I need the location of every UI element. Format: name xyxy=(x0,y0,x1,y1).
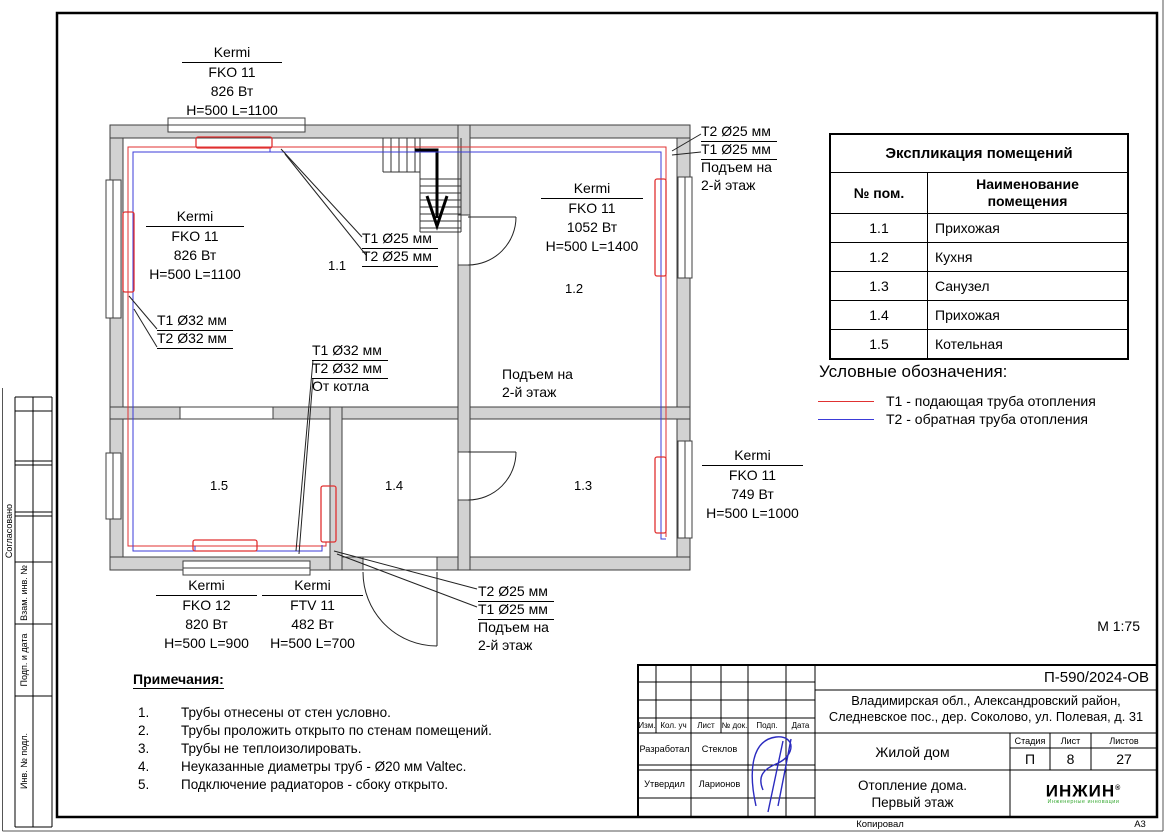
pipe-label: T1 Ø25 мм xyxy=(478,601,554,620)
note-number: 1. xyxy=(138,705,149,720)
logo-tagline: Инженерные инновации xyxy=(1048,799,1120,806)
room-number-1-3: 1.3 xyxy=(574,478,592,493)
note-text: Трубы не теплоизолировать. xyxy=(181,741,361,756)
pipe-label: T2 Ø32 мм xyxy=(157,330,233,349)
from-boiler-note: От котла xyxy=(312,378,369,394)
col-header-number: № пом. xyxy=(831,173,928,213)
radiator-size: H=500 L=1400 xyxy=(546,238,639,254)
drawing-title: Отопление дома. Первый этаж xyxy=(815,772,1010,822)
pipe-label: T2 Ø25 мм xyxy=(362,248,438,267)
radiator-power: 820 Вт xyxy=(185,616,228,632)
radiator-brand: Kermi xyxy=(146,207,244,227)
radiator-model: FKO 11 xyxy=(208,64,255,80)
note-number: 3. xyxy=(138,741,149,756)
table-row: 1.1Прихожая xyxy=(831,214,1127,243)
table-row: 1.2Кухня xyxy=(831,243,1127,272)
table-row: 1.4Прихожая xyxy=(831,301,1127,330)
radiator-model: FTV 11 xyxy=(290,597,335,613)
note-text: Неуказанные диаметры труб - Ø20 мм Valte… xyxy=(181,759,466,774)
developed-role: Разработал xyxy=(638,733,691,765)
pipe-labels-stair: T1 Ø25 мм T2 Ø25 мм xyxy=(362,230,438,266)
approved-name: Ларионов xyxy=(691,770,748,798)
scale-label: М 1:75 xyxy=(1085,618,1140,634)
pipe-labels-top-right: T2 Ø25 мм T1 Ø25 мм Подъем на 2-й этаж xyxy=(701,123,777,195)
radiator-size: H=500 L=900 xyxy=(164,635,249,651)
margin-label-inv-orig: Инв. № подл. xyxy=(19,733,29,789)
radiator-size: H=500 L=700 xyxy=(270,635,355,651)
pipe-label: T1 Ø32 мм xyxy=(157,312,233,331)
note-text: Трубы отнесены от стен условно. xyxy=(181,705,391,720)
room-number-1-2: 1.2 xyxy=(565,281,583,296)
pipe-labels-bottom: T2 Ø25 мм T1 Ø25 мм Подъем на 2-й этаж xyxy=(478,583,554,655)
pipe-label: T1 Ø25 мм xyxy=(701,141,777,160)
pipe-labels-left-wall: T1 Ø32 мм T2 Ø32 мм xyxy=(157,312,233,348)
legend-t2-line-icon xyxy=(818,419,874,420)
col-header-izm: Изм. xyxy=(638,718,656,733)
note-number: 5. xyxy=(138,777,149,792)
col-header-list: Лист xyxy=(691,718,721,733)
radiator-power: 482 Вт xyxy=(291,616,334,632)
radiator-label-kitchen: Kermi FKO 11 1052 Вт H=500 L=1400 xyxy=(541,179,643,256)
legend-item-t1: Т1 - подающая труба отопления xyxy=(886,393,1096,409)
radiator-label-hall-bottom: Kermi FTV 11 482 Вт H=500 L=700 xyxy=(262,576,363,653)
note-number: 4. xyxy=(138,759,149,774)
legend-title: Условные обозначения: xyxy=(819,362,1007,382)
riser-note: 2-й этаж xyxy=(502,384,556,400)
sheet-header: Лист xyxy=(1050,733,1091,748)
pipe-label: T2 Ø32 мм xyxy=(312,360,388,379)
developed-name: Стеклов xyxy=(691,733,748,765)
radiator-model: FKO 12 xyxy=(182,597,230,613)
radiator-brand: Kermi xyxy=(702,446,803,466)
logo-text: ИНЖИН xyxy=(1046,781,1115,800)
legend-t1-line-icon xyxy=(818,401,874,402)
table-row: 1.3Санузел xyxy=(831,272,1127,301)
radiator-brand: Kermi xyxy=(262,576,363,596)
margin-label-sign-date: Подп. и дата xyxy=(19,633,29,686)
format-label: А3 xyxy=(1125,819,1155,830)
radiator-power: 826 Вт xyxy=(174,247,217,263)
col-header-kol: Кол. уч xyxy=(656,718,691,733)
sheet-value: 8 xyxy=(1050,748,1091,770)
riser-note: Подъем на xyxy=(478,619,549,635)
room-number-1-4: 1.4 xyxy=(385,478,403,493)
riser-note: 2-й этаж xyxy=(701,177,755,193)
note-number: 2. xyxy=(138,723,149,738)
pipe-label: T1 Ø25 мм xyxy=(362,230,438,249)
margin-label-approved: Согласовано xyxy=(4,504,14,558)
radiator-power: 1052 Вт xyxy=(567,219,617,235)
note-text: Трубы проложить открыто по стенам помеще… xyxy=(181,723,492,738)
radiator-label-boiler-room: Kermi FKO 12 820 Вт H=500 L=900 xyxy=(156,576,257,653)
stair-note-kitchen: Подъем на 2-й этаж xyxy=(502,366,573,402)
sheets-header: Листов xyxy=(1091,733,1157,748)
doors xyxy=(363,217,516,646)
copied-by-label: Копировал xyxy=(845,819,915,830)
stage-header: Стадия xyxy=(1010,733,1050,748)
table-header: № пом. Наименование помещения xyxy=(831,173,1127,214)
radiator-power: 826 Вт xyxy=(211,83,254,99)
riser-note: 2-й этаж xyxy=(478,637,532,653)
radiator-brand: Kermi xyxy=(156,576,257,596)
company-logo: ИНЖИН® Инженерные инновации xyxy=(1010,770,1157,817)
pipe-label: T1 Ø32 мм xyxy=(312,342,388,361)
document-number: П-590/2024-ОВ xyxy=(815,665,1149,690)
radiator-brand: Kermi xyxy=(182,43,282,63)
room-number-1-1: 1.1 xyxy=(328,258,346,273)
radiator-label-hall-top: Kermi FKO 11 826 Вт H=500 L=1100 xyxy=(182,43,282,120)
radiator-label-hall-left: Kermi FKO 11 826 Вт H=500 L=1100 xyxy=(146,207,244,284)
drawing-sheet: { "sheet": { "scale": "М 1:75", "format"… xyxy=(0,0,1166,833)
project-address: Владимирская обл., Александровский район… xyxy=(815,691,1157,735)
riser-note: Подъем на xyxy=(701,159,772,175)
radiator-model: FKO 11 xyxy=(171,228,218,244)
note-text: Подключение радиаторов - сбоку открыто. xyxy=(181,777,448,792)
table-row: 1.5Котельная xyxy=(831,330,1127,358)
col-header-name: Наименование помещения xyxy=(928,173,1127,213)
table-title: Экспликация помещений xyxy=(831,135,1127,173)
col-header-doc: № док. xyxy=(721,718,748,733)
legend-item-t2: Т2 - обратная труба отопления xyxy=(886,411,1088,427)
col-header-data: Дата xyxy=(786,718,815,733)
radiator-size: H=500 L=1000 xyxy=(706,505,799,521)
stage-value: П xyxy=(1010,748,1050,770)
radiator-model: FKO 11 xyxy=(729,467,776,483)
radiator-model: FKO 11 xyxy=(568,200,615,216)
pipe-label: T2 Ø25 мм xyxy=(701,123,777,142)
registered-mark-icon: ® xyxy=(1115,785,1121,792)
riser-note: Подъем на xyxy=(502,366,573,382)
radiator-brand: Kermi xyxy=(541,179,643,199)
notes-title: Примечания: xyxy=(133,671,224,689)
col-header-podp: Подп. xyxy=(748,718,786,733)
pipe-label: T2 Ø25 мм xyxy=(478,583,554,602)
margin-label-subst-inv: Взам. инв. № xyxy=(19,565,29,621)
signature-scribble xyxy=(752,737,791,812)
radiator-size: H=500 L=1100 xyxy=(186,102,278,118)
radiator-label-bathroom: Kermi FKO 11 749 Вт H=500 L=1000 xyxy=(702,446,803,523)
sheets-value: 27 xyxy=(1091,748,1157,770)
object-name: Жилой дом xyxy=(815,733,1010,770)
explication-table: Экспликация помещений № пом. Наименовани… xyxy=(829,133,1129,360)
pipe-labels-from-boiler: T1 Ø32 мм T2 Ø32 мм От котла xyxy=(312,342,388,396)
radiator-power: 749 Вт xyxy=(731,486,774,502)
approved-role: Утвердил xyxy=(638,770,691,798)
room-number-1-5: 1.5 xyxy=(210,478,228,493)
radiator-size: H=500 L=1100 xyxy=(149,266,241,282)
